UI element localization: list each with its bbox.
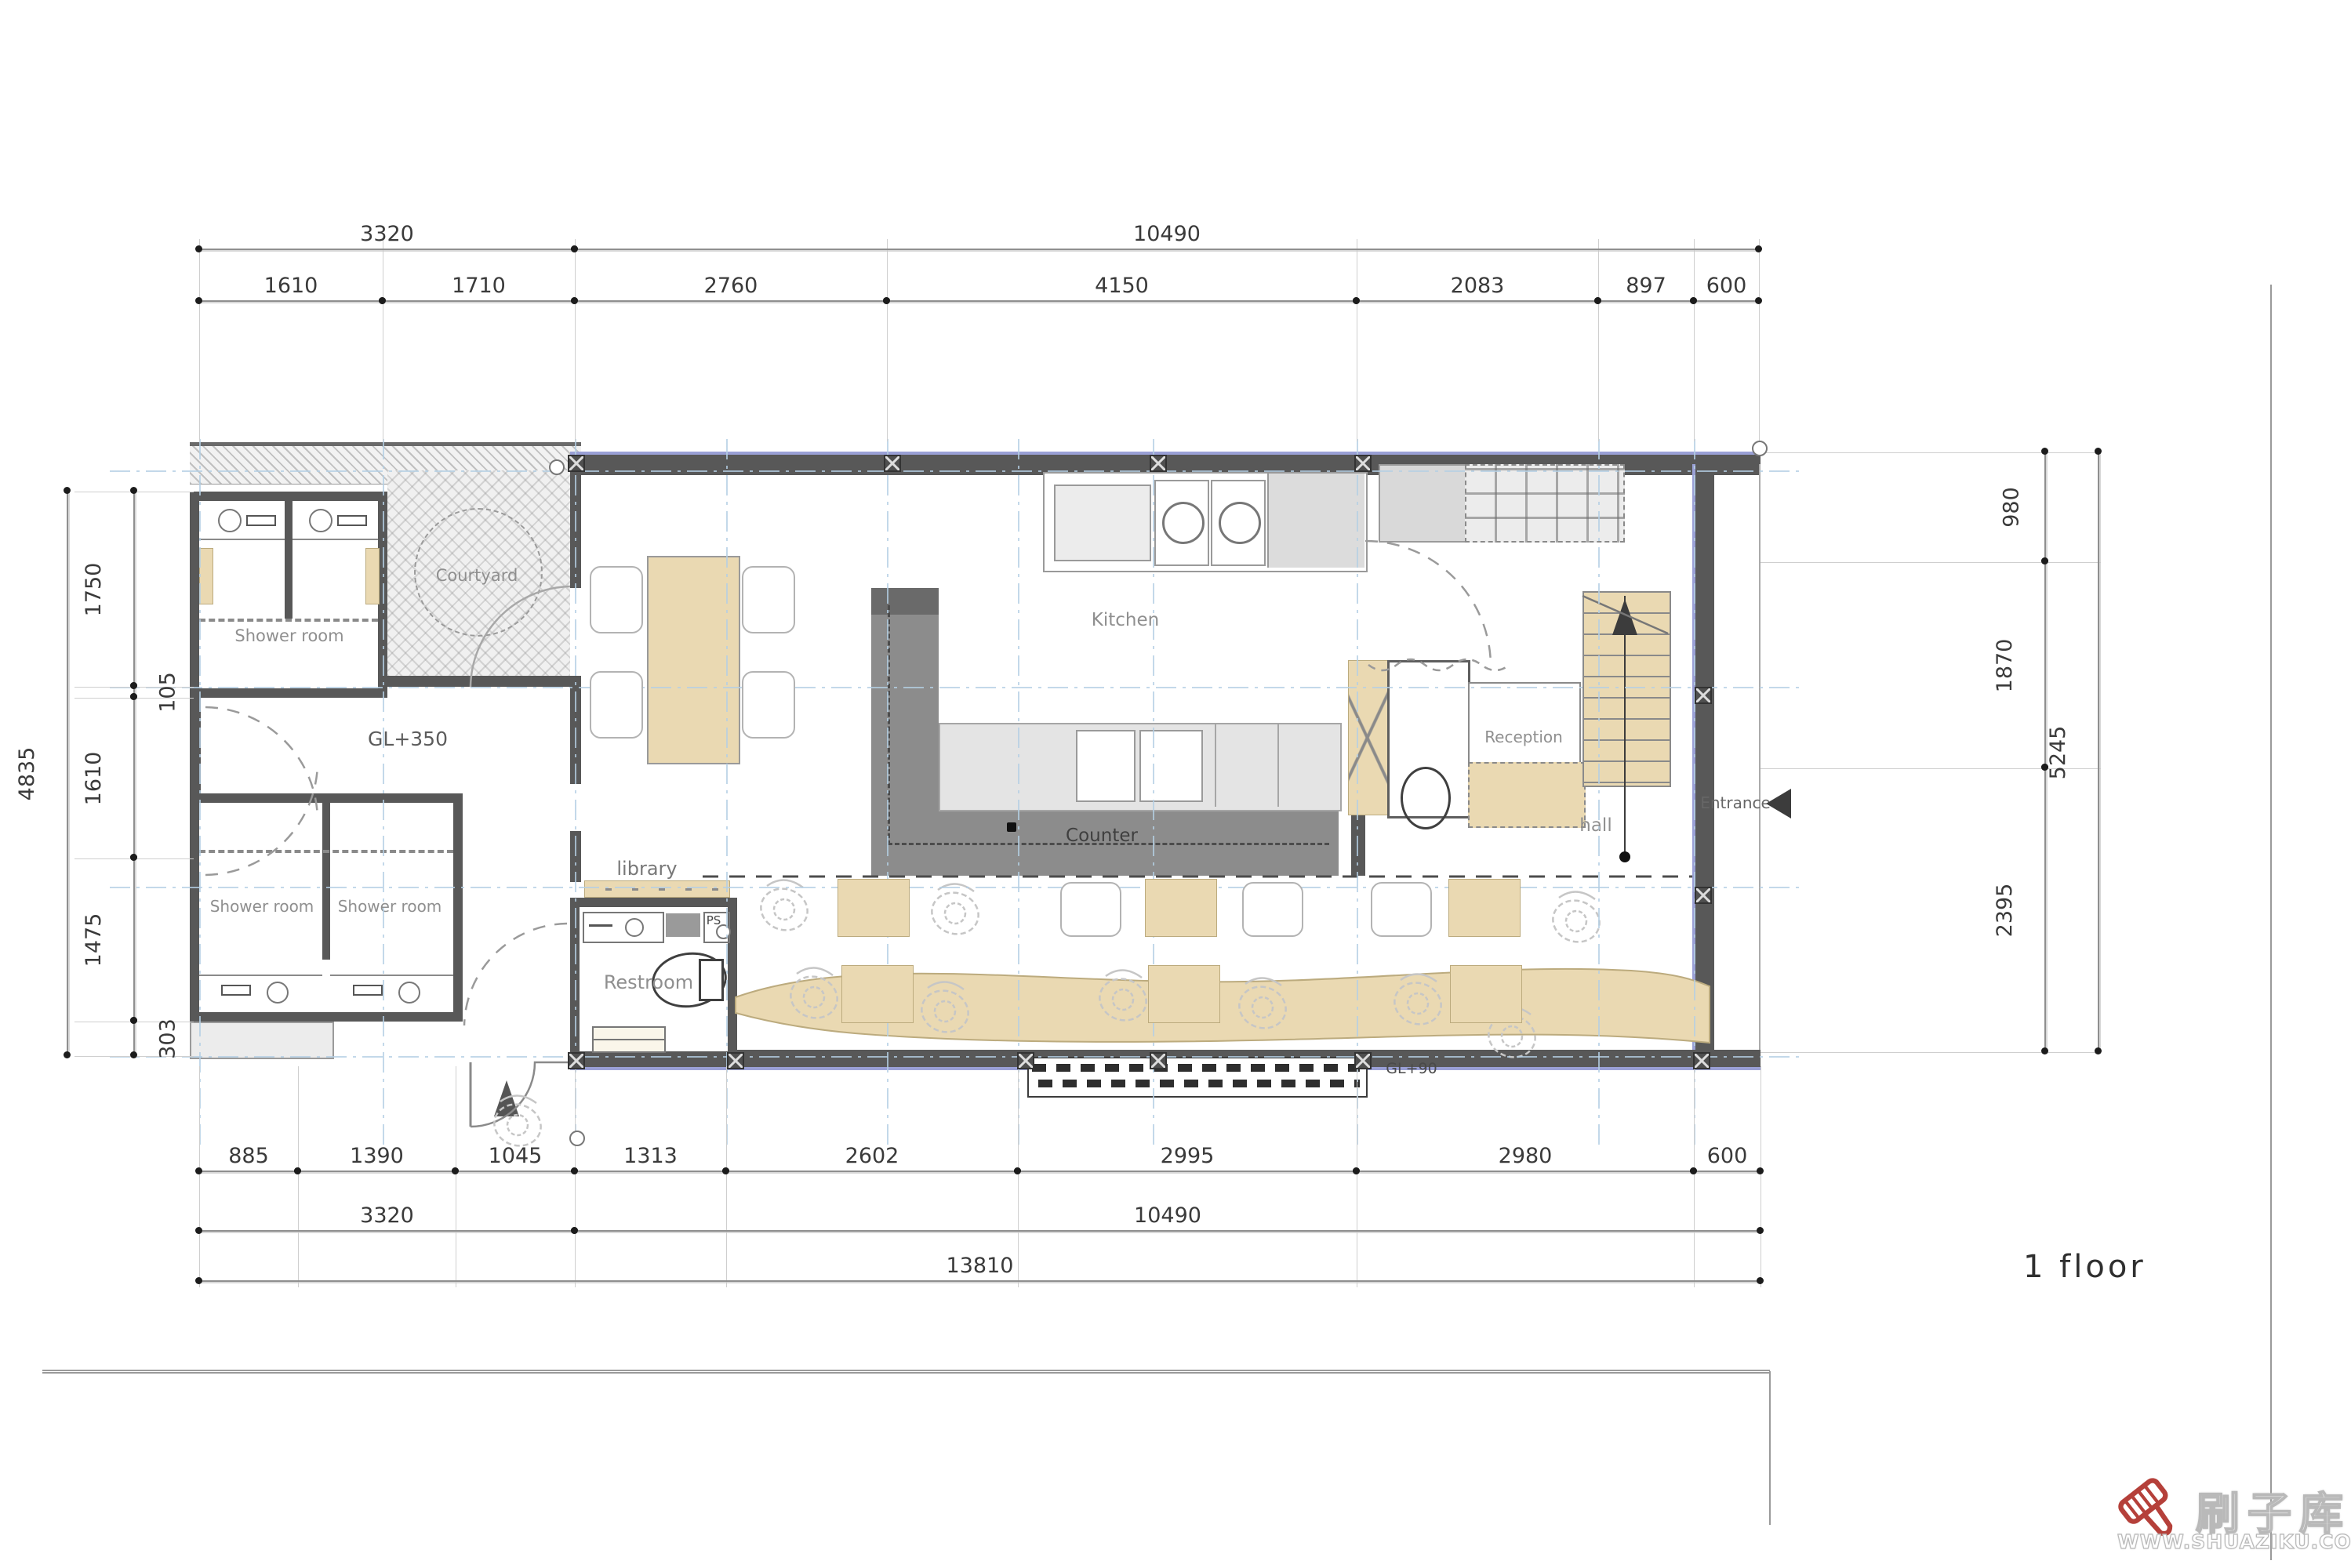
faucet-icon — [221, 985, 251, 996]
shower-divider-wall — [322, 803, 330, 960]
grid-line — [383, 439, 384, 1145]
island-sink — [1139, 730, 1203, 802]
wall-junction-marker — [1695, 687, 1712, 704]
dimension-label: 2602 — [845, 1144, 899, 1168]
wall-junction-marker — [1695, 887, 1712, 904]
drain-icon — [716, 924, 731, 939]
wall-junction-marker — [1693, 1052, 1710, 1069]
courtyard-south-wall — [387, 676, 581, 687]
grid-line — [1153, 439, 1154, 1145]
dimension-label: 105 — [155, 672, 180, 713]
burner-icon — [1219, 502, 1261, 544]
main-door-arc — [471, 1062, 570, 1127]
reception-room — [1468, 682, 1581, 765]
shower-curtain-line — [199, 850, 453, 853]
vanity-counter — [199, 975, 322, 1014]
grid-line — [110, 470, 1804, 472]
sink-icon — [309, 509, 332, 532]
dimension-line: 1750 — [133, 492, 135, 687]
grid-line — [1357, 439, 1358, 1145]
seating-table — [1145, 879, 1217, 937]
dimension-line: 4835 — [67, 492, 68, 1056]
person-sketch — [1547, 891, 1604, 948]
kitchen-counter-slab — [1267, 474, 1364, 568]
dimension-label: 885 — [228, 1144, 269, 1168]
porch-edge-line — [1759, 464, 1761, 1061]
island-seam — [1215, 724, 1216, 807]
dimension-label: 600 — [1706, 274, 1747, 298]
shower-block-bottom: Shower room Shower room — [190, 793, 463, 1022]
sheet-border-bottom — [42, 1370, 1770, 1374]
dimension-line: 2980 — [1357, 1171, 1694, 1172]
dimension-label: 1045 — [489, 1144, 543, 1168]
grid-line — [110, 1056, 1804, 1058]
extension-line — [1694, 1066, 1695, 1287]
dimension-label: 3320 — [360, 222, 414, 246]
grid-line — [575, 439, 576, 1145]
dimension-line: 10490 — [575, 249, 1759, 250]
toilet-icon — [1401, 767, 1451, 829]
person-sketch — [916, 982, 973, 1038]
room-label-shower-bl: Shower room — [203, 897, 321, 916]
sheet-border-right — [2270, 285, 2272, 1560]
wall-junction-marker — [1150, 1052, 1167, 1069]
sink-icon — [218, 509, 242, 532]
room-label-reception: Reception — [1469, 728, 1579, 746]
dimension-line: 10490 — [575, 1230, 1761, 1232]
dimension-line: 13810 — [199, 1280, 1761, 1282]
bench-pad — [365, 548, 380, 604]
person-sketch — [926, 884, 983, 940]
reception-back-cabinet — [1379, 464, 1468, 543]
extension-line — [298, 1066, 299, 1287]
faucet-icon — [337, 515, 367, 526]
person-sketch — [785, 967, 842, 1024]
seating-table — [1448, 879, 1521, 937]
chair — [1060, 882, 1121, 937]
stair-line-dot — [1619, 851, 1630, 862]
stair-up-arrow — [1612, 599, 1637, 635]
dimension-line: 2083 — [1357, 300, 1598, 302]
sink-icon — [267, 982, 289, 1004]
storage-dashed-cabinet — [1465, 464, 1625, 543]
dimension-label: 4150 — [1095, 274, 1149, 298]
extension-line — [1761, 562, 2101, 563]
room-label-hall: hall — [1561, 815, 1631, 837]
extension-line — [575, 1066, 576, 1287]
dimension-line: 1475 — [133, 858, 135, 1022]
room-label-restroom: Restroom — [594, 971, 703, 994]
dimension-label: 303 — [155, 1018, 180, 1059]
restroom-cabinet — [592, 1026, 666, 1053]
room-label-courtyard: Courtyard — [414, 566, 540, 586]
dimension-line: 3320 — [199, 249, 575, 250]
dimension-line: 1610 — [133, 698, 135, 858]
person-sketch — [755, 880, 812, 936]
wall-junction-marker — [1354, 455, 1372, 472]
dimension-line: 600 — [1694, 1171, 1761, 1172]
sink-icon — [398, 982, 420, 1004]
dimension-label: 2395 — [1993, 884, 2017, 938]
dimension-line: 1710 — [383, 300, 575, 302]
dimension-line: 3320 — [199, 1230, 575, 1232]
entrance-arrow — [1766, 789, 1791, 818]
dimension-label: 980 — [2000, 487, 2024, 528]
dimension-label: 897 — [1626, 274, 1666, 298]
kitchen-island — [939, 723, 1342, 811]
dining-chair — [742, 671, 795, 739]
extension-line — [726, 1066, 727, 1287]
room-label-library: library — [604, 858, 690, 880]
restroom: PS Restroom — [570, 898, 737, 1061]
room-label-counter: Counter — [1043, 826, 1161, 848]
dimension-label: 1870 — [1993, 638, 2017, 692]
level-label-gl350: GL+350 — [349, 728, 467, 751]
dimension-label: 2760 — [704, 274, 758, 298]
dimension-line: 2995 — [1018, 1171, 1357, 1172]
shower-divider-wall — [285, 501, 293, 619]
wall-junction-marker — [1354, 1052, 1372, 1069]
bench-pad — [199, 548, 213, 604]
kitchen-top-cabinets — [1043, 472, 1368, 572]
restroom-sink — [583, 912, 664, 943]
dimension-label: 10490 — [1134, 1203, 1201, 1228]
seating-table — [838, 879, 910, 937]
wall-junction-marker — [568, 1052, 585, 1069]
faucet-icon — [589, 924, 612, 927]
dimension-label: 2995 — [1161, 1144, 1215, 1168]
dimension-label: 4835 — [15, 747, 39, 801]
extension-line — [575, 239, 576, 441]
dimension-line: 897 — [1598, 300, 1694, 302]
dimension-line: 1313 — [575, 1171, 726, 1172]
grid-line — [887, 439, 888, 1145]
drawing-title: 1 floor — [2023, 1248, 2146, 1286]
grid-line — [199, 439, 201, 1145]
person-sketch — [1234, 978, 1291, 1034]
extension-line — [199, 239, 200, 441]
kitchen-sink-cabinet — [1054, 485, 1151, 561]
wall-junction-marker — [1150, 455, 1167, 472]
grid-line — [1694, 439, 1695, 1145]
extension-line — [1018, 1066, 1019, 1287]
extension-line — [199, 1066, 200, 1287]
grid-line — [110, 887, 1804, 888]
dimension-label: 1475 — [82, 913, 106, 967]
chair — [1242, 882, 1303, 937]
extension-line — [1761, 1052, 2101, 1053]
wall-junction-marker — [568, 455, 585, 472]
door-arc-restroom — [464, 924, 567, 1025]
dimension-line: 5245 — [2098, 452, 2099, 1052]
sink-icon — [625, 918, 644, 937]
dimension-line: 303 — [133, 1022, 135, 1056]
floor-plan-sheet: Courtyard Shower room GL+350 Shower room… — [0, 0, 2351, 1568]
dimension-label: 1390 — [350, 1144, 404, 1168]
person-sketch — [1094, 970, 1151, 1026]
room-label-shower-top: Shower room — [231, 626, 348, 646]
extension-line — [1357, 1066, 1357, 1287]
island-seam — [1277, 724, 1279, 807]
wall-circle-marker — [1752, 441, 1768, 456]
faucet-icon — [246, 515, 276, 526]
vanity-counter — [330, 975, 453, 1014]
dimension-line: 1045 — [456, 1171, 575, 1172]
dimension-label: 1313 — [623, 1144, 678, 1168]
level-label-gl90: GL+90 — [1376, 1060, 1447, 1078]
dimension-line: 2395 — [2044, 768, 2046, 1052]
shower-block-top: Shower room — [190, 492, 387, 698]
room-label-shower-br: Shower room — [331, 897, 449, 916]
dimension-line: 1610 — [199, 300, 383, 302]
extension-line — [1761, 452, 2101, 453]
extension-line — [383, 239, 383, 441]
shower-curtain-line — [199, 619, 378, 622]
faucet-icon — [353, 985, 383, 996]
reception-side-cabinet — [1348, 660, 1389, 815]
dimension-line: 600 — [1694, 300, 1759, 302]
wall-circle-marker — [569, 1131, 585, 1146]
deck-grate — [1027, 1057, 1368, 1098]
dimension-label: 1610 — [82, 751, 106, 805]
dining-chair — [742, 566, 795, 633]
dimension-line: 2760 — [575, 300, 887, 302]
deck-grate-row — [1032, 1064, 1360, 1072]
grid-line — [110, 687, 1804, 688]
burner-icon — [1162, 502, 1205, 544]
extension-line — [1357, 239, 1357, 441]
deck-grate-row — [1038, 1080, 1360, 1087]
entry-step-303 — [190, 1022, 334, 1059]
seating-table — [1450, 965, 1522, 1023]
person-sketch — [1389, 974, 1446, 1030]
grid-line — [1598, 439, 1600, 1145]
main-door-arrow — [494, 1080, 519, 1116]
sheet-border-step — [1769, 1371, 1771, 1525]
seating-table — [841, 965, 914, 1023]
extension-line — [1759, 239, 1760, 441]
dimension-label: 1750 — [82, 562, 106, 616]
wall-junction-marker — [727, 1052, 744, 1069]
grid-line — [1018, 439, 1019, 1145]
library-shelf — [584, 880, 730, 898]
wall-circle-marker — [549, 459, 565, 475]
extension-line — [1598, 239, 1599, 441]
dimension-line: 885 — [199, 1171, 298, 1172]
island-sink — [1076, 730, 1136, 802]
dimension-label: 13810 — [947, 1254, 1014, 1278]
dimension-label: 600 — [1707, 1144, 1748, 1168]
counter-dot — [1007, 822, 1016, 832]
extension-line — [1694, 239, 1695, 441]
wall-junction-marker — [1017, 1052, 1034, 1069]
dimension-line: 1390 — [298, 1171, 456, 1172]
grid-line — [726, 439, 728, 1145]
wall-junction-marker — [884, 455, 901, 472]
watermark-url: WWW.SHUAZIKU.COM — [2117, 1530, 2351, 1553]
dimension-line: 4150 — [887, 300, 1357, 302]
chair — [1371, 882, 1432, 937]
extension-line — [1761, 1066, 1761, 1287]
dimension-label: 2980 — [1499, 1144, 1553, 1168]
dimension-label: 1610 — [264, 274, 318, 298]
room-label-kitchen: Kitchen — [1066, 610, 1184, 632]
dimension-label: 10490 — [1133, 222, 1201, 246]
east-wall — [1692, 464, 1714, 1061]
dining-chair — [590, 566, 643, 633]
dimension-label: 2083 — [1451, 274, 1505, 298]
seating-table — [1148, 965, 1220, 1023]
extension-line — [887, 239, 888, 441]
dimension-label: 5245 — [2046, 725, 2070, 779]
dimension-line: 980 — [2044, 452, 2046, 562]
dining-chair — [590, 671, 643, 739]
dimension-label: 1710 — [452, 274, 506, 298]
dimension-label: 3320 — [360, 1203, 414, 1228]
counter-box — [666, 913, 700, 937]
extension-line — [456, 1066, 456, 1287]
door-arc-hall — [1365, 541, 1491, 666]
dimension-line: 2602 — [726, 1171, 1018, 1172]
